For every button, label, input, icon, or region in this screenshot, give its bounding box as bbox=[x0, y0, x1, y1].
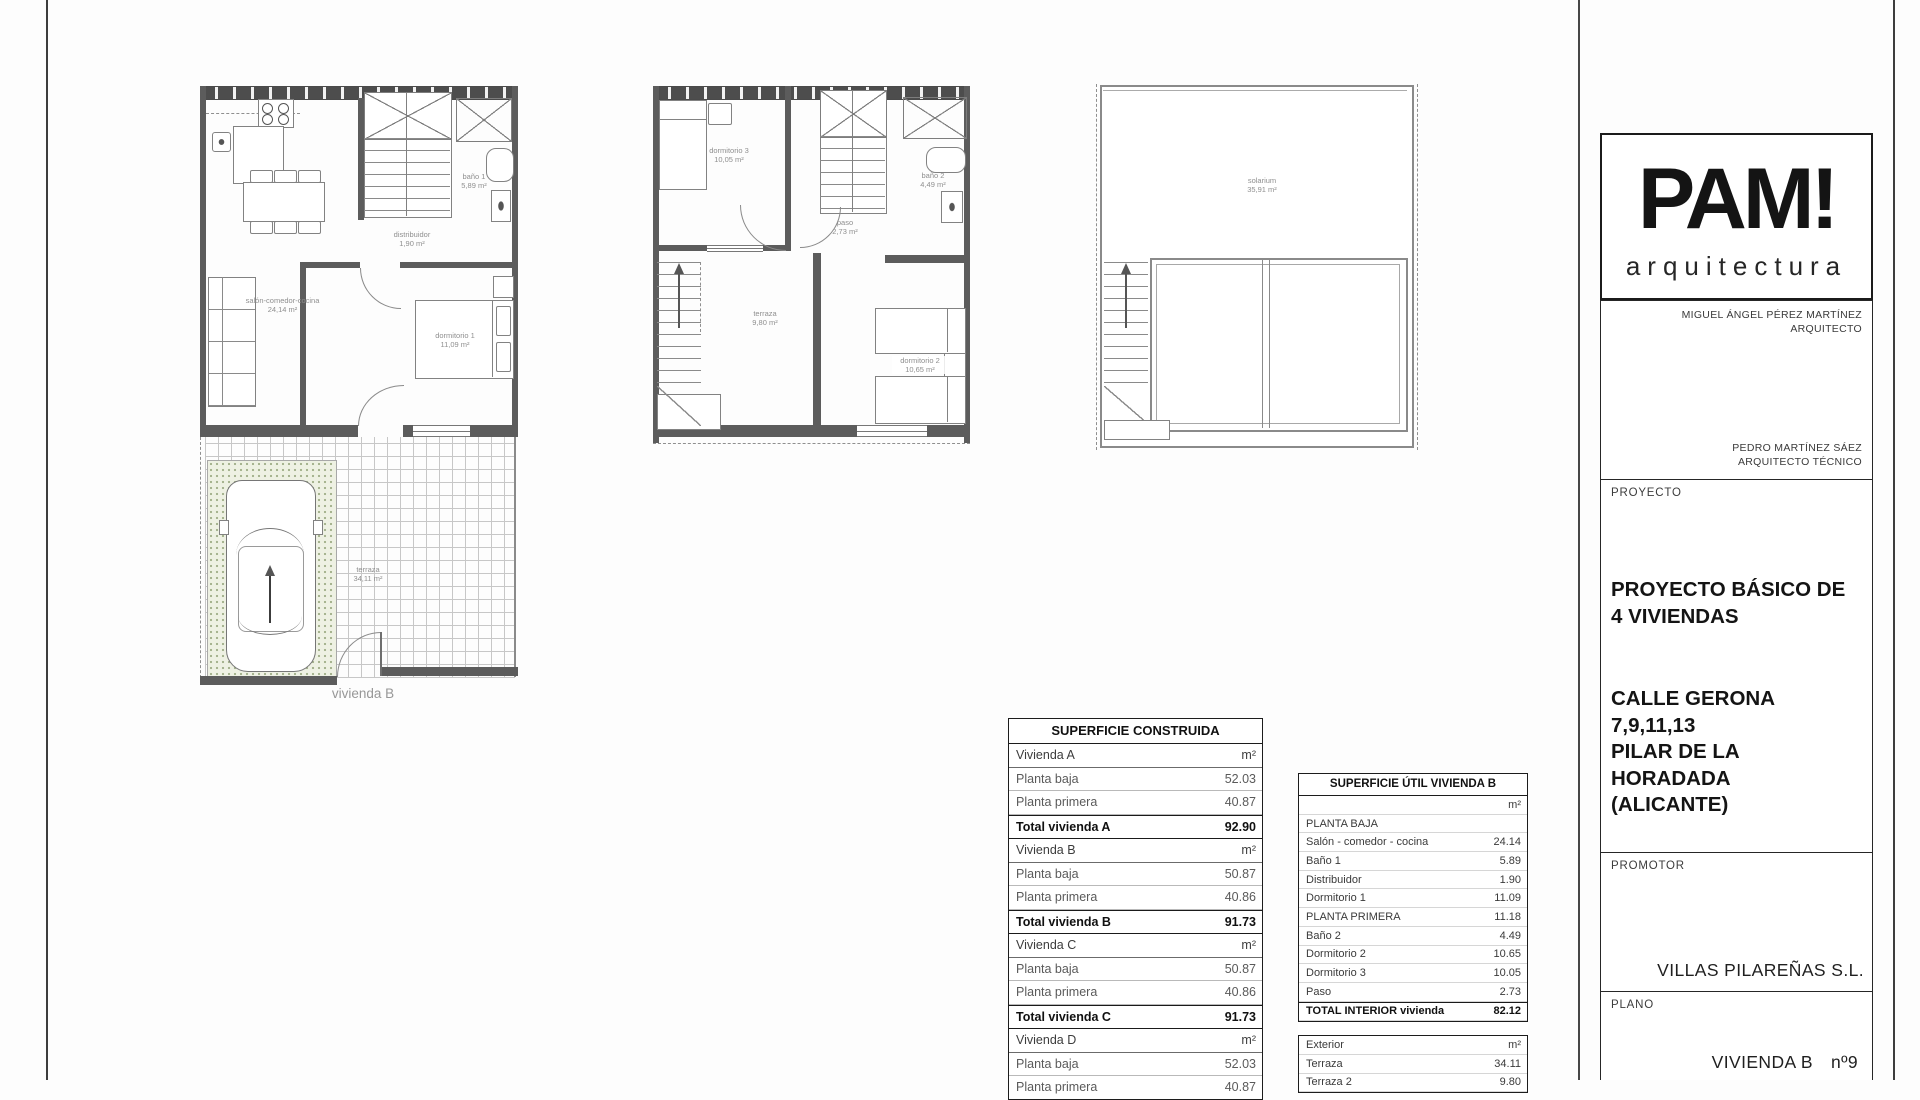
window bbox=[413, 425, 470, 437]
nightstand bbox=[493, 276, 514, 298]
logo-box: PAM! arquitectura bbox=[1600, 133, 1873, 300]
toilet bbox=[491, 190, 511, 222]
room-label: terraza9,80 m² bbox=[742, 309, 788, 327]
chair bbox=[274, 221, 297, 234]
table-row: Salón - comedor - cocina 24.14 bbox=[1299, 833, 1527, 852]
chair bbox=[298, 221, 321, 234]
table-row: Baño 2 4.49 bbox=[1299, 927, 1527, 946]
table-row: Vivienda C m² bbox=[1009, 934, 1262, 958]
boundary-line bbox=[700, 262, 702, 332]
room-label: dormitorio 310,05 m² bbox=[700, 146, 758, 164]
room-label: terraza34,11 m² bbox=[345, 565, 391, 583]
bed bbox=[659, 100, 707, 190]
table-row: Planta primera 40.86 bbox=[1009, 981, 1262, 1005]
table-row: m² bbox=[1299, 796, 1527, 815]
project-title: PROYECTO BÁSICO DE 4 VIVIENDAS bbox=[1611, 576, 1864, 630]
pillow bbox=[496, 342, 511, 372]
architect-2: PEDRO MARTÍNEZ SÁEZ ARQUITECTO TÉCNICO bbox=[1732, 442, 1862, 469]
room-label: dormitorio 111,09 m² bbox=[427, 331, 483, 349]
table-row: Terraza 34.11 bbox=[1299, 1055, 1527, 1074]
boundary-line bbox=[1417, 84, 1419, 450]
table-row: Planta baja 50.87 bbox=[1009, 863, 1262, 887]
logo-subtitle: arquitectura bbox=[1602, 251, 1871, 282]
sheet-border-left bbox=[46, 0, 48, 1080]
table-row: Planta primera 40.87 bbox=[1009, 1076, 1262, 1099]
stair-arrow bbox=[678, 273, 680, 328]
plan-caption: vivienda B bbox=[318, 686, 408, 701]
architect-1: MIGUEL ÁNGEL PÉREZ MARTÍNEZ ARQUITECTO bbox=[1682, 309, 1862, 336]
boundary-line bbox=[653, 443, 970, 445]
titleblock-frame-line bbox=[1578, 0, 1580, 1080]
roof-void-inner bbox=[1156, 264, 1400, 424]
door-arc bbox=[360, 268, 401, 309]
room-label: baño 24,49 m² bbox=[913, 171, 953, 189]
terrace-wall bbox=[380, 667, 518, 676]
room-label: distribuidor1,90 m² bbox=[384, 230, 440, 248]
section-architects: MIGUEL ÁNGEL PÉREZ MARTÍNEZ ARQUITECTO P… bbox=[1601, 300, 1872, 479]
table-row: Dormitorio 1 11.09 bbox=[1299, 889, 1527, 908]
table-row: Vivienda D m² bbox=[1009, 1029, 1262, 1053]
table-row: Planta baja 52.03 bbox=[1009, 768, 1262, 792]
section-label: PLANO bbox=[1611, 999, 1654, 1011]
chair bbox=[274, 170, 297, 183]
bed-line bbox=[947, 376, 948, 422]
room-label: dormitorio 210,65 m² bbox=[892, 356, 948, 374]
logo-pam: PAM! bbox=[1602, 149, 1871, 249]
wall bbox=[927, 425, 970, 437]
table-superficie-util: SUPERFICIE ÚTIL VIVIENDA B m² PLANTA BAJ… bbox=[1298, 773, 1528, 1093]
bathtub bbox=[926, 147, 966, 173]
stair-arrow bbox=[1125, 273, 1127, 328]
table-body-exterior: Exterior m² Terraza 34.11 Terraza 2 9.80 bbox=[1298, 1035, 1528, 1093]
wall bbox=[300, 262, 306, 425]
stair-landing bbox=[1104, 420, 1170, 440]
wall bbox=[403, 425, 413, 437]
room-label: baño 15,89 m² bbox=[452, 172, 496, 190]
plano-name: VIVIENDA B nº9 bbox=[1712, 1052, 1858, 1073]
wall bbox=[813, 253, 821, 425]
table-title: SUPERFICIE CONSTRUIDA bbox=[1008, 718, 1263, 744]
stair-arrow-head bbox=[1121, 263, 1131, 274]
section-label: PROMOTOR bbox=[1611, 860, 1685, 872]
table-row: Terraza 2 9.80 bbox=[1299, 1074, 1527, 1093]
project-address: CALLE GERONA 7,9,11,13 PILAR DE LA HORAD… bbox=[1611, 686, 1864, 819]
table-title: SUPERFICIE ÚTIL VIVIENDA B bbox=[1298, 773, 1528, 796]
wall bbox=[470, 425, 518, 437]
pillow bbox=[708, 103, 732, 125]
boundary-line bbox=[200, 437, 202, 683]
table-row: Dormitorio 2 10.65 bbox=[1299, 946, 1527, 965]
bed-line bbox=[947, 308, 948, 352]
table-row: Exterior m² bbox=[1299, 1036, 1527, 1055]
table-row: Total vivienda C 91.73 bbox=[1009, 1005, 1262, 1030]
table-row: Planta baja 52.03 bbox=[1009, 1053, 1262, 1077]
titleblock: MIGUEL ÁNGEL PÉREZ MARTÍNEZ ARQUITECTO P… bbox=[1600, 300, 1873, 1080]
section-promotor: PROMOTOR VILLAS PILAREÑAS S.L. bbox=[1601, 852, 1872, 991]
car-arrow-head bbox=[265, 565, 275, 576]
door-arc bbox=[358, 385, 404, 426]
stair-divider bbox=[406, 92, 407, 216]
section-plano: PLANO VIVIENDA B nº9 bbox=[1601, 991, 1872, 1084]
car-mirror bbox=[219, 520, 229, 535]
table-row: TOTAL INTERIOR vivienda 82.12 bbox=[1299, 1002, 1527, 1022]
boundary-line bbox=[1096, 84, 1098, 450]
table-row: Planta primera 40.86 bbox=[1009, 886, 1262, 910]
section-proyecto: PROYECTO PROYECTO BÁSICO DE 4 VIVIENDAS … bbox=[1601, 479, 1872, 852]
wall bbox=[200, 86, 206, 437]
promotor-name: VILLAS PILAREÑAS S.L. bbox=[1657, 960, 1864, 981]
stair-cut-line bbox=[657, 386, 701, 426]
stair-treads bbox=[364, 138, 450, 216]
terrace-wall bbox=[200, 676, 337, 685]
terrace-edge bbox=[514, 437, 516, 677]
window bbox=[857, 425, 927, 437]
table-body-interior: m² PLANTA BAJA Salón - comedor - cocina … bbox=[1298, 796, 1528, 1022]
sheet-border-right bbox=[1893, 0, 1895, 1080]
pillow bbox=[496, 306, 511, 336]
wall bbox=[400, 262, 518, 268]
table-row: Vivienda A m² bbox=[1009, 744, 1262, 768]
stairs-upper-flight bbox=[820, 90, 887, 138]
wall bbox=[306, 262, 360, 268]
stair-divider bbox=[852, 90, 853, 212]
plano-number: nº9 bbox=[1831, 1052, 1858, 1073]
table-row: Total vivienda B 91.73 bbox=[1009, 910, 1262, 935]
room-label: solarium35,91 m² bbox=[1236, 176, 1288, 194]
void-divider bbox=[1262, 258, 1270, 428]
table-superficie-construida: SUPERFICIE CONSTRUIDA Vivienda A m² Plan… bbox=[1008, 718, 1263, 1100]
table-row: PLANTA PRIMERA 11.18 bbox=[1299, 908, 1527, 927]
sink bbox=[212, 132, 231, 152]
stairs-upper-flight bbox=[364, 92, 452, 140]
wall bbox=[885, 255, 970, 263]
table-row: Planta primera 40.87 bbox=[1009, 791, 1262, 815]
table-row: Dormitorio 3 10.05 bbox=[1299, 964, 1527, 983]
room-label: paso2,73 m² bbox=[828, 218, 862, 236]
table-body: Vivienda A m² Planta baja 52.03 Planta p… bbox=[1008, 744, 1263, 1100]
bed bbox=[875, 308, 966, 354]
section-label: PROYECTO bbox=[1611, 487, 1682, 499]
chair bbox=[298, 170, 321, 183]
gate-leaf bbox=[380, 632, 382, 676]
car-arrow bbox=[269, 575, 271, 623]
bed-line bbox=[492, 300, 493, 377]
wardrobe bbox=[903, 97, 967, 139]
toilet bbox=[941, 191, 963, 223]
stair-arrow-head bbox=[674, 263, 684, 274]
stove bbox=[258, 99, 294, 128]
dining-table bbox=[243, 182, 325, 222]
shower bbox=[456, 98, 512, 142]
window bbox=[707, 245, 763, 252]
bed bbox=[875, 376, 966, 424]
table-row: Planta baja 50.87 bbox=[1009, 958, 1262, 982]
solarium-outline-inner bbox=[1103, 90, 1407, 91]
wall bbox=[200, 425, 358, 437]
table-row: Paso 2.73 bbox=[1299, 983, 1527, 1002]
sofa-armrest bbox=[222, 277, 223, 405]
stair-cut-line bbox=[1104, 386, 1148, 424]
table-row: Vivienda B m² bbox=[1009, 839, 1262, 863]
table-row: Baño 1 5.89 bbox=[1299, 852, 1527, 871]
room-label: salón-comedor-cocina24,14 m² bbox=[240, 296, 325, 314]
table-row: Distribuidor 1.90 bbox=[1299, 871, 1527, 890]
chair bbox=[250, 221, 273, 234]
chair bbox=[250, 170, 273, 183]
table-row: Total vivienda A 92.90 bbox=[1009, 815, 1262, 840]
table-row: PLANTA BAJA bbox=[1299, 815, 1527, 834]
car-mirror bbox=[313, 520, 323, 535]
